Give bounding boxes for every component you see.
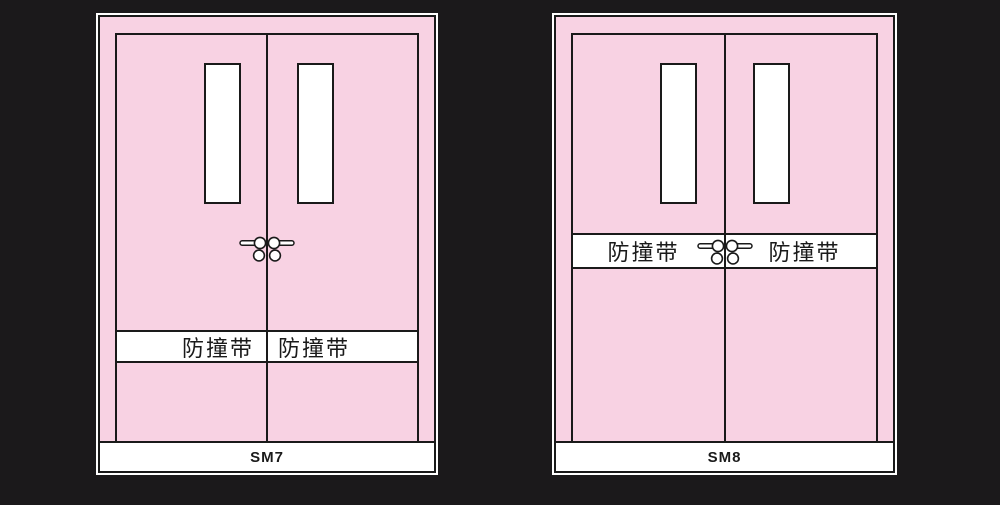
door-frame: 防撞带 防撞带 [100,17,434,443]
diagram-border: 防撞带 防撞带 [554,15,895,473]
diagram-label: SM8 [708,449,742,466]
diagram-panel: 防撞带 防撞带 [96,13,438,475]
door-assembly: 防撞带 防撞带 [571,33,878,441]
vision-window-right [297,63,334,204]
vision-window-left [660,63,697,204]
diagram-label: SM7 [250,449,284,466]
door-assembly: 防撞带 防撞带 [115,33,419,441]
vision-window-left [204,63,241,204]
diagram-border: 防撞带 防撞带 [98,15,436,473]
door-frame: 防撞带 防撞带 [556,17,893,443]
threshold-band: SM7 [100,443,434,471]
door-handles-icon [239,234,295,262]
drawing-canvas: 防撞带 防撞带 [0,0,1000,505]
strip-label-right: 防撞带 [769,235,841,267]
door-handles-icon [697,237,753,265]
door-diagram-sm7: 防撞带 防撞带 [96,13,438,475]
strip-label-left: 防撞带 [607,235,679,267]
diagram-panel: 防撞带 防撞带 [552,13,897,475]
threshold-band: SM8 [556,443,893,471]
door-diagram-sm8: 防撞带 防撞带 [552,13,897,475]
strip-label-right: 防撞带 [278,331,350,363]
strip-label-left: 防撞带 [182,331,254,363]
vision-window-right [753,63,790,204]
